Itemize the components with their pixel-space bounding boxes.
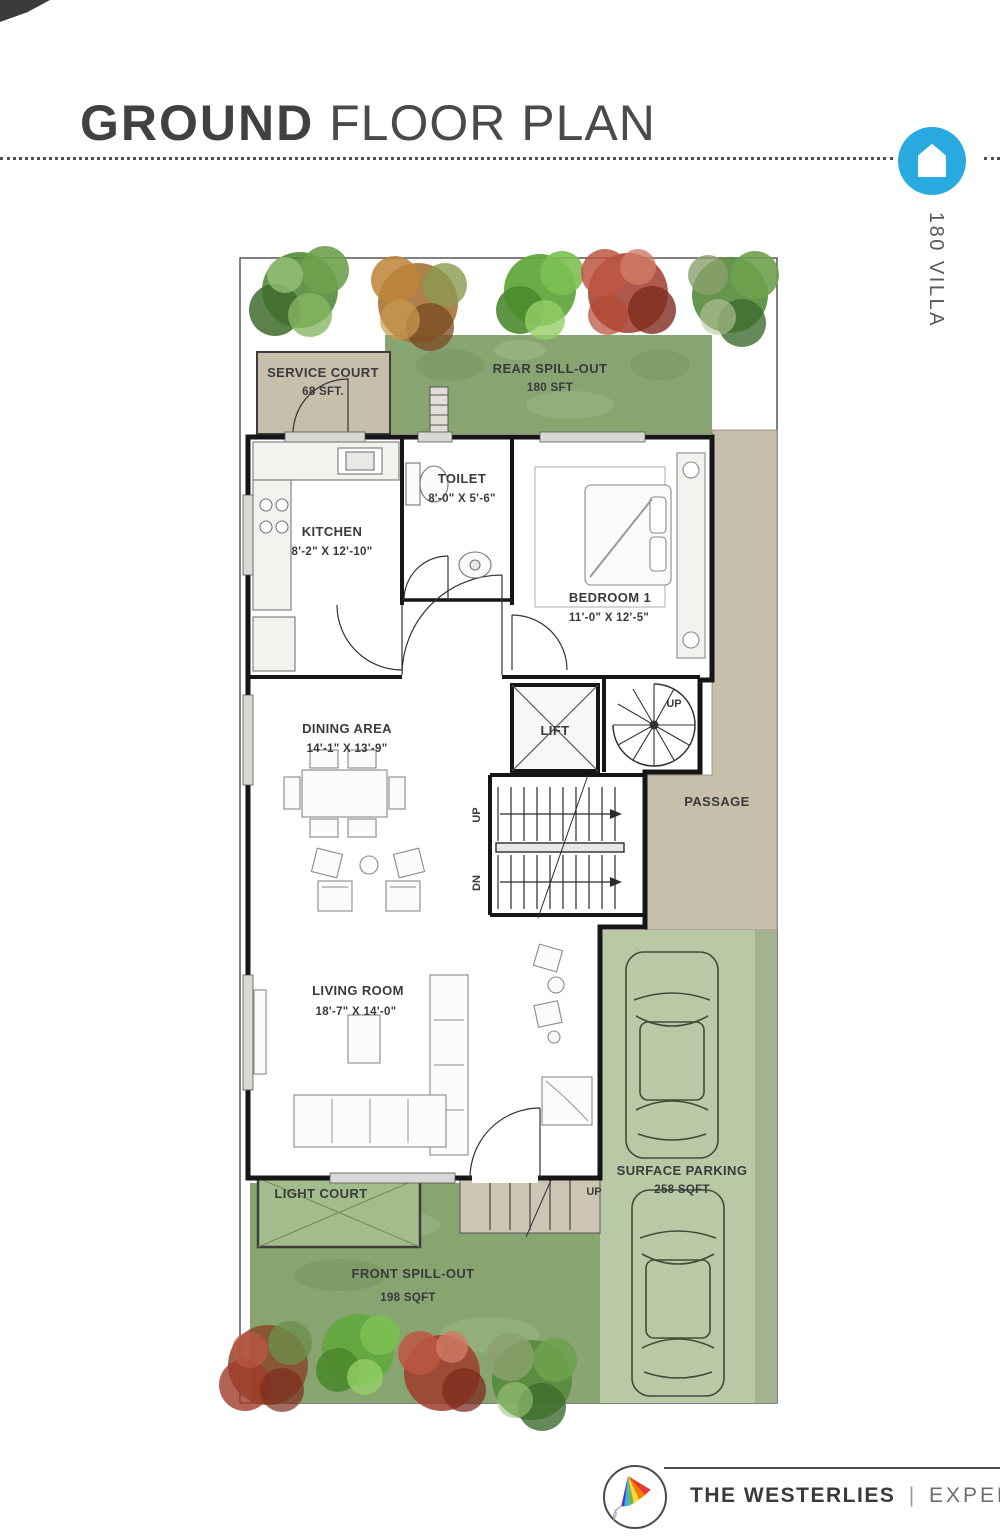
rear-spill-out-label: REAR SPILL-OUT — [493, 361, 608, 376]
brand-name: THE WESTERLIES — [690, 1484, 895, 1507]
tree-red-brown — [219, 1321, 312, 1412]
service-court-label: SERVICE COURT — [267, 365, 379, 380]
brand-separator: | — [903, 1484, 922, 1507]
light-court-label: LIGHT COURT — [274, 1186, 367, 1201]
kite-logo-icon — [601, 1463, 669, 1531]
corner-decoration — [0, 0, 50, 22]
entry-up-label: UP — [586, 1186, 601, 1198]
bedroom1-label: BEDROOM 1 — [569, 590, 651, 605]
kite-logo — [601, 1463, 669, 1531]
parking-label: SURFACE PARKING — [617, 1163, 748, 1178]
dotted-divider-left — [0, 157, 893, 160]
kitchen-dims-label: 8'-2" X 12'-10" — [292, 546, 373, 558]
stair-up-label: UP — [471, 807, 483, 822]
villa-size-label: 180 VILLA — [924, 212, 947, 328]
front-spill-out-label: FRONT SPILL-OUT — [352, 1266, 475, 1281]
dining-label: DINING AREA — [302, 721, 392, 736]
service-court-area-label: 68 SFT. — [302, 386, 344, 398]
footer-brand: THE WESTERLIES | EXPERION — [690, 1484, 1000, 1508]
tree-green-3 — [486, 1333, 577, 1431]
ground-floor-plan-page: GROUND FLOOR PLAN 180 VILLA — [0, 0, 1000, 1539]
passage-label: PASSAGE — [684, 794, 749, 809]
front-spill-out-area-label: 198 SQFT — [380, 1292, 435, 1304]
toilet-dims-label: 8'-0" X 5'-6" — [428, 493, 496, 505]
house-icon — [912, 141, 952, 181]
entry-door-opening — [472, 1172, 538, 1183]
living-dims-label: 18'-7" X 14'-0" — [316, 1006, 397, 1018]
developer-name: EXPERION — [929, 1484, 1000, 1507]
footer-rule — [664, 1467, 1000, 1469]
page-title-bold: GROUND — [80, 95, 314, 151]
page-title-rest: FLOOR PLAN — [329, 95, 656, 151]
parking-area-label: 258 SQFT — [654, 1184, 709, 1196]
page-title: GROUND FLOOR PLAN — [80, 94, 656, 152]
stair-dn-label: DN — [471, 875, 483, 891]
villa-type-badge — [898, 127, 966, 195]
kitchen-label: KITCHEN — [302, 524, 363, 539]
toilet-label: TOILET — [438, 471, 486, 486]
spiral-up-label: UP — [666, 698, 681, 710]
bedroom1-dims-label: 11'-0" X 12'-5" — [569, 612, 649, 624]
lift-label: LIFT — [540, 723, 569, 738]
dotted-divider-right — [984, 157, 1000, 160]
floor-plan-drawing: SERVICE COURT 68 SFT. REAR SPILL-OUT 180… — [190, 215, 810, 1465]
dining-dims-label: 14'-1" X 13'-9" — [307, 743, 388, 755]
rear-spill-out-area-label: 180 SFT — [527, 382, 573, 394]
living-label: LIVING ROOM — [312, 983, 404, 998]
